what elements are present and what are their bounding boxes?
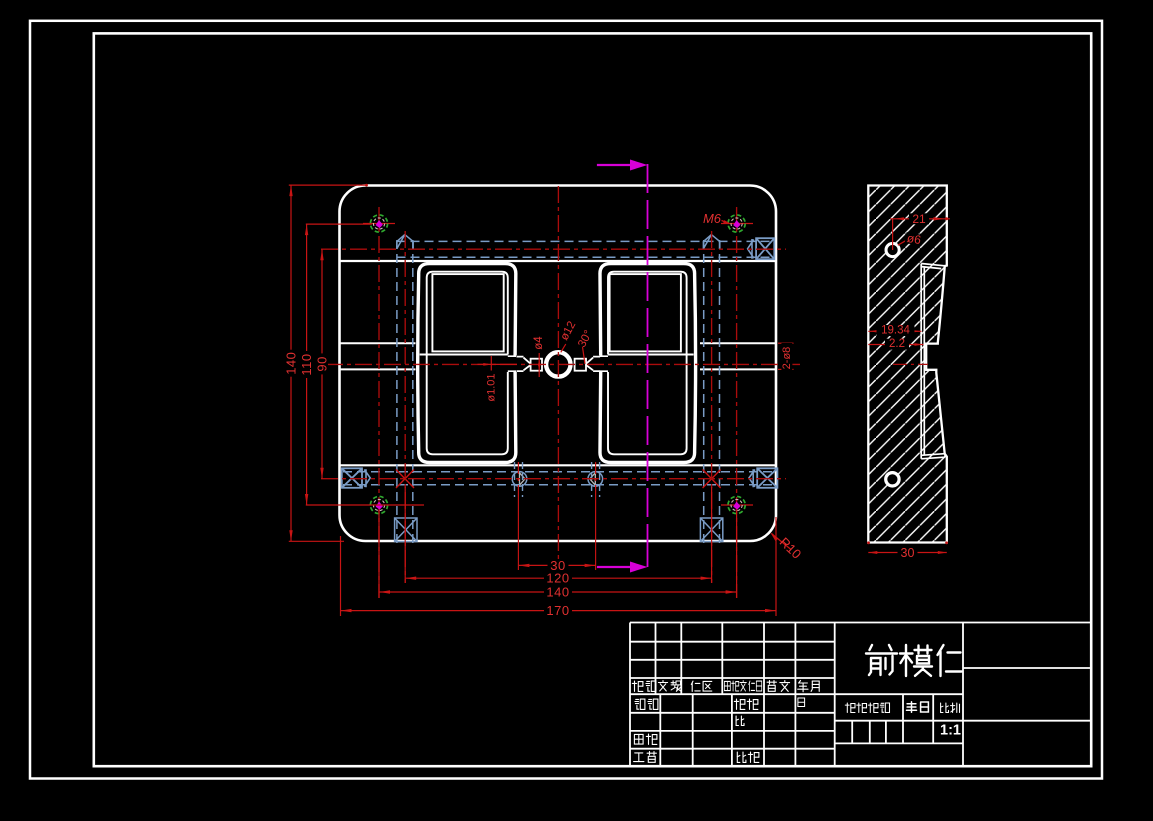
svg-text:140: 140 <box>284 352 299 375</box>
svg-text:2-ø8: 2-ø8 <box>781 347 793 370</box>
svg-text:ø4: ø4 <box>533 336 545 350</box>
svg-text:120: 120 <box>546 571 569 586</box>
svg-text:110: 110 <box>299 353 314 375</box>
svg-text:170: 170 <box>546 603 569 618</box>
svg-text:90: 90 <box>315 356 330 371</box>
svg-text:19.34: 19.34 <box>881 325 910 337</box>
svg-text:21: 21 <box>912 212 926 226</box>
svg-text:30: 30 <box>901 546 915 560</box>
svg-text:ø6: ø6 <box>906 231 923 247</box>
svg-text:M6: M6 <box>703 211 722 226</box>
svg-text:2.2: 2.2 <box>889 338 905 350</box>
svg-text:ø1.01: ø1.01 <box>485 373 497 401</box>
svg-text:140: 140 <box>546 585 569 600</box>
svg-text:1:1: 1:1 <box>940 723 961 739</box>
